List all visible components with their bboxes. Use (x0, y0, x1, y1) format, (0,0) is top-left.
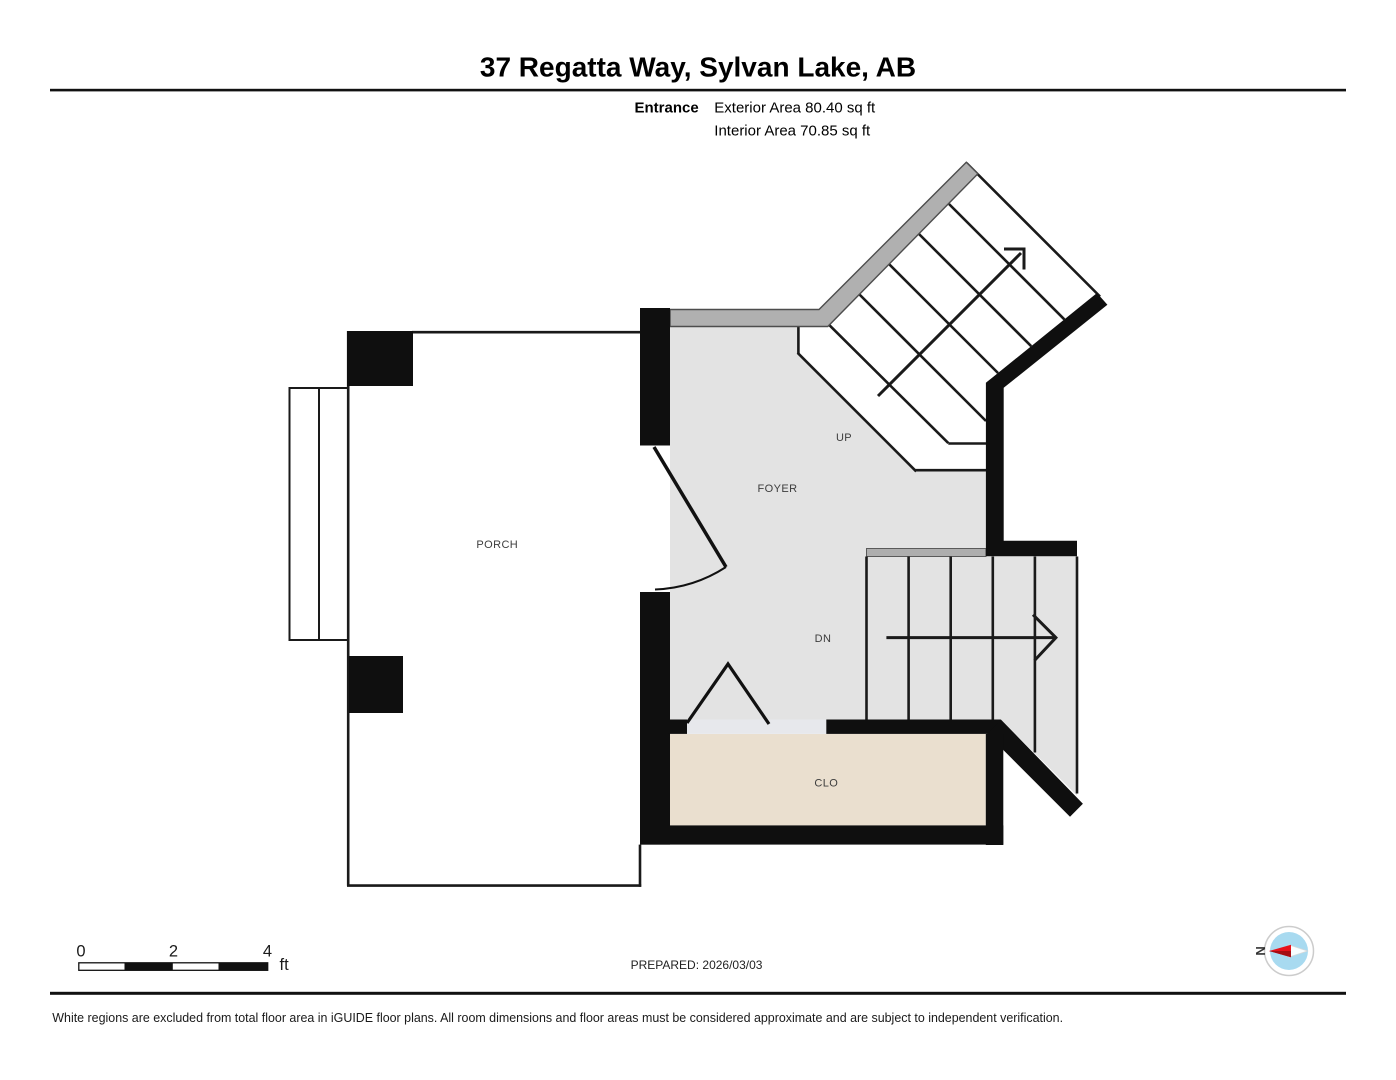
svg-text:2: 2 (169, 943, 178, 961)
svg-text:PORCH: PORCH (476, 539, 518, 551)
svg-text:CLO: CLO (814, 778, 838, 790)
svg-text:37 Regatta Way, Sylvan Lake, A: 37 Regatta Way, Sylvan Lake, AB (480, 52, 916, 83)
svg-text:DN: DN (815, 633, 832, 645)
svg-text:Entrance: Entrance (634, 100, 698, 117)
svg-text:N: N (1253, 946, 1268, 955)
svg-text:0: 0 (76, 943, 85, 961)
svg-text:FOYER: FOYER (758, 483, 798, 495)
svg-text:White regions are excluded fro: White regions are excluded from total fl… (52, 1011, 1063, 1025)
svg-text:ft: ft (280, 956, 290, 974)
svg-text:Interior Area 70.85 sq ft: Interior Area 70.85 sq ft (714, 123, 871, 140)
svg-text:PREPARED: 2026/03/03: PREPARED: 2026/03/03 (631, 958, 763, 972)
svg-text:4: 4 (263, 943, 272, 961)
svg-text:UP: UP (836, 432, 852, 444)
svg-text:Exterior Area 80.40 sq ft: Exterior Area 80.40 sq ft (714, 100, 876, 117)
